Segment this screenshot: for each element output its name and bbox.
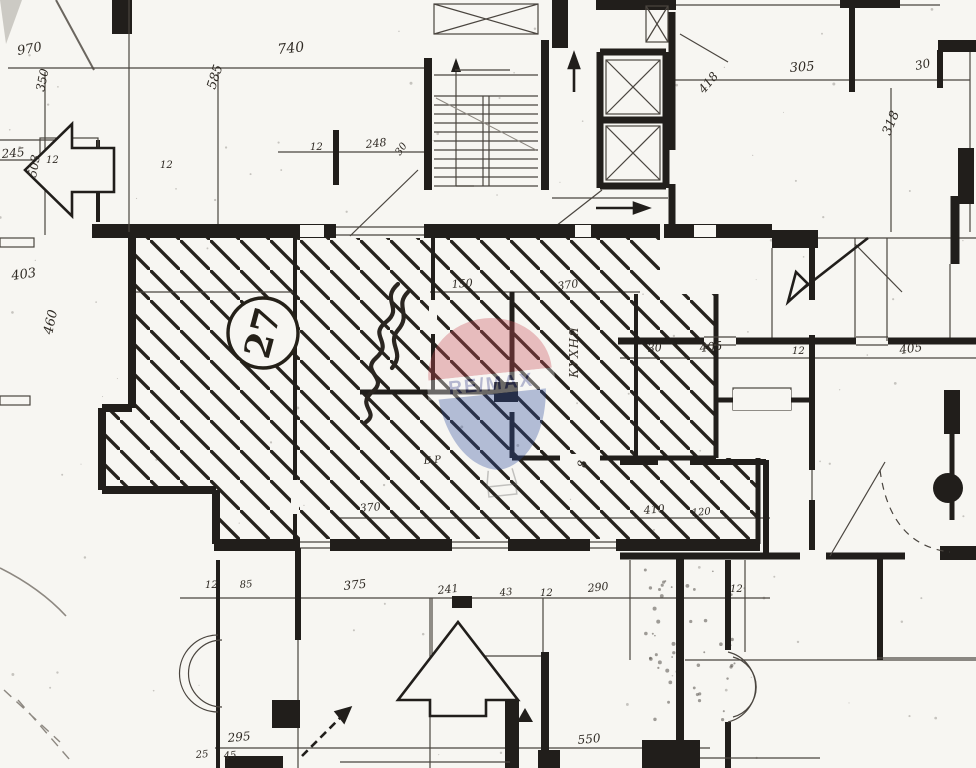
- dimension-label: 248: [364, 136, 387, 151]
- speckle: [901, 621, 903, 623]
- dimension-label: 43: [498, 587, 513, 599]
- dimension-label: 375: [343, 577, 367, 593]
- speckle: [725, 689, 728, 692]
- window-symbol: [0, 238, 34, 247]
- dimension-label: 12: [205, 580, 218, 591]
- dimension-label: 418: [695, 69, 721, 97]
- dimension-label: 30: [393, 140, 410, 157]
- speckle: [719, 642, 723, 646]
- hall-arrow-right-head: [634, 203, 648, 213]
- speckle: [839, 389, 840, 390]
- speckle: [655, 653, 658, 656]
- speckle: [433, 140, 434, 141]
- dimension-label: 305: [789, 59, 815, 76]
- unit-number-badge: 27: [228, 298, 298, 368]
- speckle: [496, 194, 498, 196]
- speckle: [795, 180, 797, 182]
- speckle: [61, 474, 63, 476]
- speckle: [821, 33, 823, 35]
- speckle: [658, 588, 661, 591]
- balcony-arc-bottom-right-inner: [733, 657, 756, 717]
- speckle: [657, 667, 659, 669]
- corner-balcony-line: [830, 462, 885, 556]
- speckle: [534, 28, 536, 30]
- speckle: [644, 632, 648, 636]
- speckle: [894, 382, 897, 385]
- speckle: [422, 633, 425, 636]
- speckle: [9, 129, 11, 131]
- scan-smudge: [0, 0, 22, 44]
- speckle: [733, 662, 735, 664]
- speckle: [704, 619, 708, 623]
- stairwell: [428, 4, 545, 190]
- speckle: [675, 84, 678, 87]
- speckle: [398, 31, 399, 32]
- dimension-label: 405: [698, 339, 723, 355]
- speckle: [751, 677, 752, 678]
- speckle: [214, 199, 216, 201]
- speckle: [773, 576, 775, 578]
- speckle: [671, 656, 673, 658]
- dimension-label: 403: [9, 266, 37, 284]
- speckle: [277, 141, 279, 143]
- speckle: [909, 190, 911, 192]
- dimension-label: 290: [586, 580, 609, 595]
- speckle: [653, 607, 657, 611]
- speckle: [11, 311, 14, 314]
- dimension-label: 12: [730, 584, 743, 595]
- dimension-label: Б.Р: [422, 455, 441, 468]
- speckle: [559, 182, 560, 183]
- speckle: [721, 718, 724, 721]
- path-arrow-bottom: [302, 714, 344, 756]
- speckle: [783, 112, 784, 113]
- speckle: [410, 82, 413, 85]
- speckle: [102, 396, 103, 397]
- speckle: [35, 260, 36, 261]
- speckle: [712, 570, 714, 572]
- dimension-label: 740: [277, 39, 305, 58]
- speckle: [644, 569, 647, 572]
- speckle: [438, 754, 439, 755]
- window-symbol: [0, 396, 30, 405]
- speckle: [693, 588, 696, 591]
- speckle: [668, 680, 672, 684]
- entrance-arrow-bottom: [398, 622, 518, 716]
- speckle: [47, 103, 49, 105]
- dimension-label: 550: [577, 731, 601, 747]
- speckle: [832, 82, 835, 85]
- speckle: [829, 463, 831, 465]
- speckle: [703, 651, 705, 653]
- speckle: [698, 692, 701, 695]
- balcony-column: [933, 473, 963, 503]
- speckle: [698, 566, 701, 569]
- dimension-label: 30: [914, 56, 932, 73]
- speckle: [95, 301, 97, 303]
- site-contour: [0, 568, 66, 616]
- speckle: [649, 657, 653, 661]
- speckle: [664, 580, 666, 582]
- dimension-label: 12: [792, 346, 805, 357]
- dimension-label: 370: [359, 500, 381, 515]
- speckle: [797, 641, 799, 643]
- speckle: [656, 620, 660, 624]
- speckle: [686, 584, 690, 588]
- speckle: [920, 597, 922, 599]
- speckle: [498, 97, 500, 99]
- speckle: [660, 594, 664, 598]
- scan-line: [56, 0, 94, 70]
- door-mark: [517, 708, 533, 722]
- hall-arrow-up-head: [569, 54, 579, 68]
- speckle: [117, 378, 118, 379]
- speckle: [280, 169, 282, 171]
- speckle: [747, 331, 749, 333]
- speckle: [0, 216, 2, 219]
- stair-break-line: [436, 98, 536, 150]
- balcony-arc-bottom-right: [728, 652, 756, 722]
- dimension-label: 410: [642, 502, 665, 517]
- floor-plan-drawing: 27 КУХНЯ 9703502451250374058512122483040…: [0, 0, 976, 768]
- speckle: [962, 515, 964, 517]
- dimension-label: 350: [33, 67, 52, 93]
- speckle: [962, 240, 963, 241]
- speckle: [225, 146, 227, 148]
- dimension-label: 460: [41, 308, 61, 336]
- speckle: [175, 188, 177, 190]
- speckle: [672, 642, 676, 646]
- speckle: [57, 86, 59, 88]
- speckle: [665, 669, 669, 673]
- speckle: [652, 633, 654, 635]
- speckle: [500, 752, 502, 754]
- dimension-label: 295: [226, 729, 251, 745]
- dimension-label: 970: [16, 40, 43, 59]
- speckle: [726, 677, 728, 679]
- speckle: [661, 584, 664, 587]
- speckle: [653, 718, 656, 721]
- dimension-label: 45: [222, 750, 237, 762]
- speckle: [250, 173, 252, 175]
- speckle: [698, 699, 701, 702]
- balcony-arc-left: [180, 635, 219, 712]
- speckle: [931, 8, 934, 11]
- speckle: [672, 675, 674, 677]
- speckle: [756, 279, 757, 280]
- speckle: [84, 556, 86, 558]
- speckle: [723, 710, 725, 712]
- speckle: [672, 651, 675, 654]
- speckle: [153, 690, 155, 692]
- dimension-label: 12: [310, 142, 323, 153]
- elevator-shafts: [600, 6, 668, 188]
- speckle: [819, 461, 821, 463]
- speckle: [353, 629, 355, 631]
- dimension-label: 318: [880, 109, 903, 138]
- speckle: [689, 620, 692, 623]
- kitchen-label: КУХНЯ: [567, 326, 581, 379]
- dimension-label: 85: [239, 579, 253, 591]
- dimension-label: 585: [205, 63, 227, 91]
- floor-plan-page: 27 КУХНЯ 9703502451250374058512122483040…: [0, 0, 976, 768]
- speckle: [649, 586, 652, 589]
- speckle: [697, 664, 700, 667]
- door-arrow-right-head: [788, 272, 808, 302]
- speckle: [626, 703, 629, 706]
- speckle: [198, 685, 199, 686]
- speckle: [866, 354, 868, 356]
- speckle: [513, 72, 515, 74]
- dimension-label: 241: [436, 582, 459, 597]
- dimension-label: 12: [540, 588, 553, 599]
- speckle: [671, 586, 673, 588]
- speckle: [752, 155, 753, 156]
- speckle: [729, 665, 732, 668]
- speckle: [693, 687, 696, 690]
- speckle: [803, 256, 805, 258]
- speckle: [436, 132, 439, 135]
- dimension-label: 12: [160, 160, 173, 171]
- dimension-label: 25: [194, 749, 209, 761]
- speckle: [136, 198, 137, 199]
- speckle: [658, 660, 662, 664]
- stair-treads: [434, 96, 538, 186]
- dimension-label: 12: [46, 155, 59, 166]
- speckle: [49, 687, 51, 689]
- speckle: [848, 702, 849, 703]
- speckle: [346, 211, 348, 213]
- dimension-label: 245: [0, 145, 25, 161]
- speckle: [56, 671, 58, 673]
- speckle: [908, 715, 910, 717]
- dimension-label: 30: [647, 341, 662, 355]
- speckle: [892, 298, 894, 300]
- speckle: [934, 717, 937, 720]
- dimension-label: 405: [897, 340, 923, 357]
- speckle: [667, 701, 670, 704]
- path-arrow-bottom-head: [336, 708, 350, 722]
- speckle: [582, 120, 584, 122]
- dimension-label: 150: [451, 277, 473, 291]
- site-contour: [4, 690, 70, 760]
- speckle: [11, 673, 14, 676]
- speckle: [724, 67, 725, 68]
- speckle: [80, 464, 81, 465]
- speckle: [654, 635, 656, 637]
- speckle: [822, 216, 824, 218]
- dimension-label: 120: [691, 506, 712, 519]
- speckle: [384, 603, 386, 605]
